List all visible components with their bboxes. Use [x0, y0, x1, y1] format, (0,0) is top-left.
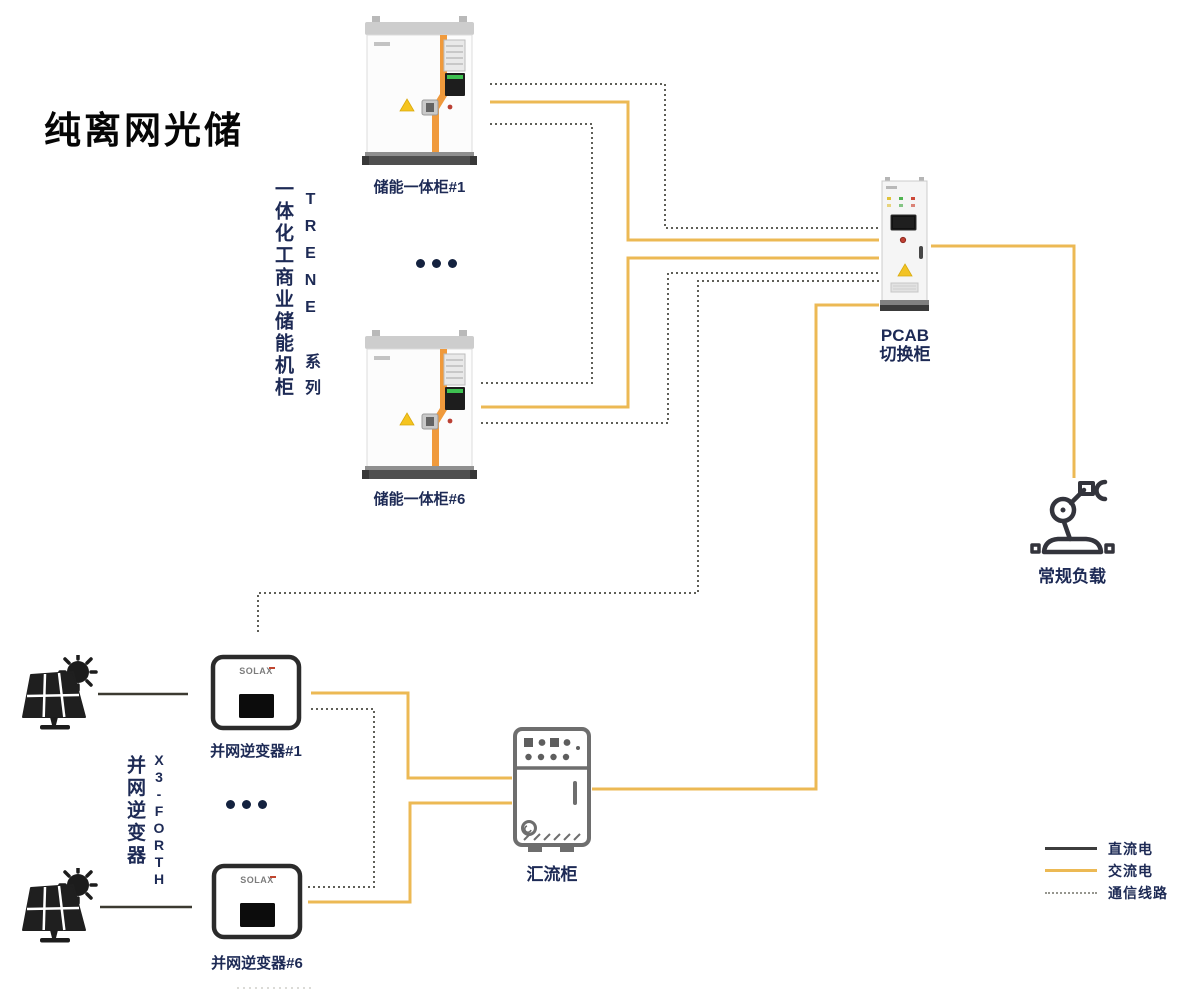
pv-array-1	[22, 655, 102, 738]
pcab-label-line2: 切换柜	[855, 345, 955, 364]
legend: 直流电 交流电 通信线路	[1045, 841, 1168, 900]
ac-line-cabinet6-to-pcab	[481, 258, 879, 407]
solar-panel-icon	[22, 655, 102, 733]
comm-line-cabinet1-to-cabinet6	[481, 124, 592, 383]
storage-cabinet-6	[362, 330, 477, 485]
inverter-1-label: 并网逆变器#1	[191, 740, 321, 761]
pv-array-2	[22, 868, 102, 951]
load-label: 常规负载	[1028, 562, 1116, 587]
combiner-cabinet-icon	[512, 726, 592, 856]
storage-cabinet-6-label: 储能一体柜#6	[342, 488, 497, 509]
storage-series-name: 一体化工商业储能机柜	[269, 179, 296, 399]
storage-cabinet-icon	[362, 16, 477, 166]
inverter-icon: SOLAX	[211, 863, 303, 940]
inverter-brand-text: SOLAX	[240, 875, 274, 885]
legend-label-ac: 交流电	[1108, 861, 1153, 881]
load-node	[1030, 477, 1115, 560]
comm-line-cabinet6-to-pcab	[481, 273, 879, 423]
pcab-label: PCAB 切换柜	[855, 326, 955, 364]
pcab-label-line1: PCAB	[855, 326, 955, 345]
combiner-label: 汇流柜	[512, 860, 592, 885]
cabinet-ellipsis-dots	[416, 259, 457, 268]
legend-row-dc: 直流电	[1045, 841, 1168, 856]
legend-label-dc: 直流电	[1108, 839, 1153, 859]
storage-cabinet-icon	[362, 330, 477, 480]
inverter-series-name: 并网逆变器	[121, 755, 148, 868]
ac-line-sample	[1045, 869, 1097, 872]
comm-line-inverter1-to-inverter6	[308, 709, 374, 887]
ac-line-combiner-to-pcab	[592, 305, 879, 789]
inverter-6: SOLAX	[211, 863, 303, 945]
robot-arm-icon	[1030, 477, 1115, 555]
legend-row-ac: 交流电	[1045, 863, 1168, 878]
combiner-cabinet	[512, 726, 592, 861]
comm-line-cabinet1-to-pcab	[490, 84, 879, 228]
inverter-icon: SOLAX	[210, 654, 302, 731]
ac-line-inverter1-to-combiner	[311, 693, 512, 778]
comm-line-sample	[1045, 892, 1097, 894]
legend-row-comm: 通信线路	[1045, 885, 1168, 900]
comm-line-pcab-to-inverter1	[258, 281, 879, 633]
inverter-series-model: X3-FORTH	[151, 752, 167, 888]
ac-line-cabinet1-to-pcab	[490, 102, 879, 240]
offgrid-pv-storage-diagram: 纯离网光储 一体化工商业储能机柜 TRENE 系列 并网逆变器 X3-FORTH…	[0, 0, 1200, 1000]
storage-cabinet-1-label: 储能一体柜#1	[342, 176, 497, 197]
page-title: 纯离网光储	[44, 100, 244, 154]
inverter-6-label: 并网逆变器#6	[192, 952, 322, 973]
storage-cabinet-1	[362, 16, 477, 171]
dc-line-sample	[1045, 847, 1097, 850]
pcab-cabinet	[880, 177, 930, 317]
solar-panel-icon	[22, 868, 102, 946]
inverter-brand-text: SOLAX	[239, 666, 273, 676]
inverter-1: SOLAX	[210, 654, 302, 736]
inverter-ellipsis-dots	[226, 800, 267, 809]
legend-label-comm: 通信线路	[1108, 883, 1168, 903]
pcab-cabinet-icon	[880, 177, 930, 312]
storage-series-model: TRENE 系列	[298, 191, 322, 405]
